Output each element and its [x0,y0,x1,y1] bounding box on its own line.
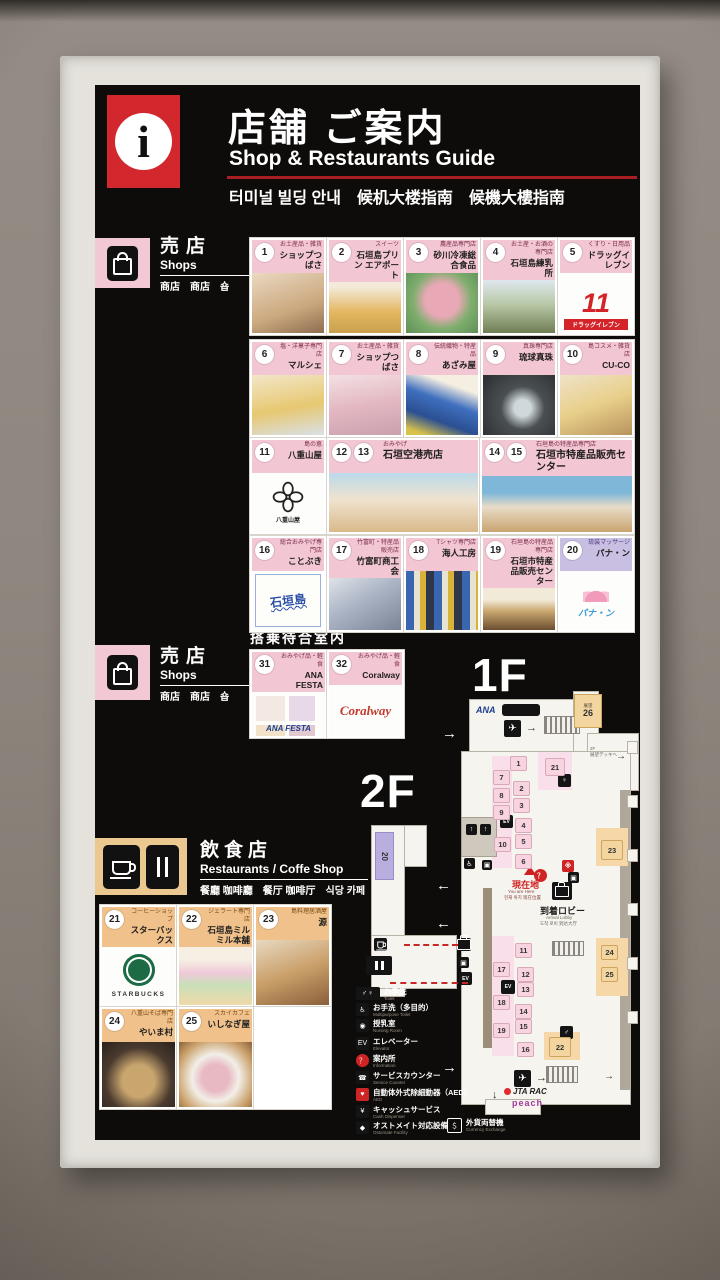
card-category: 琉装マッサージ [585,540,630,548]
card-header-text: お土産・お酒の専門店石垣島練乳所 [508,242,553,278]
legend-sub: Toilet [384,996,407,1001]
arrow-icon: → [616,752,626,762]
shops-section-chip-2 [95,645,150,700]
page-title-multilang: 터미널 빌딩 안내 候机大楼指南 候機大樓指南 [229,184,565,208]
restaurants-label-ja: 飲食店 [200,840,368,862]
card-logo: ANA FESTA [252,692,325,736]
card-header: 8伝統織物・特産品あざみ屋 [406,342,478,375]
legend-text: サービスカウンターService Counter [373,1071,441,1085]
card-number: 14 [485,443,504,462]
restaurants-label-multi: 餐廳 咖啡廳 餐厅 咖啡厅 식당 카페 [200,882,368,897]
card-logo: Coralway [329,685,402,736]
card-header-text: おみやげ石垣空港売店 [379,442,476,462]
card-header-text: 石垣島の特産品専門店石垣市特産品販売センター [532,442,630,474]
map-chip-11: 11 [515,943,532,958]
elevator-icon: EV [501,980,515,994]
legend-sub: Multipurpose Toilet [373,1012,433,1017]
information-icon-box: i [107,95,180,188]
card-category: 石垣島の特産品専門店 [536,442,630,450]
card-shop-name: 八重山屋 [277,450,322,460]
card-logo: 八重山屋 [252,473,324,532]
card-number: 3 [409,243,428,262]
card-number: 20 [563,541,582,560]
shop-card: 1お土産品・雑貨ショップつばさ [250,238,326,335]
legend-item: ♿お手洗（多目的）Multipurpose Toilet [356,1003,433,1017]
card-category: おみやげ品・軽食 [354,654,400,670]
card-shop-name: マルシェ [277,360,322,370]
legend-label: エレベーター [373,1037,418,1046]
card-number: 25 [182,1012,201,1031]
legend-label: 外貨両替機 [466,1118,506,1127]
arrow-icon: → [526,723,537,734]
legend-sub: Information [373,1063,396,1068]
card-header-text: 琉装マッサージパナ・ン [585,540,630,558]
shop-card: 1415石垣島の特産品専門店石垣市特産品販売センター [480,438,634,534]
card-header: 24八重山そば専門店やいま村 [102,1009,175,1042]
title-divider [227,176,637,179]
card-header: 10島コスメ・雑貨店CU-CO [560,342,632,375]
card-photo: 11ドラッグイレブン [560,273,632,333]
card-shop-name: パナ・ン [585,548,630,558]
card-category: お土産品・雑貨 [277,242,322,250]
flower-logo-icon [272,481,304,513]
card-shop-name: 砂川冷凍総合食品 [431,250,476,270]
card-header: 1415石垣島の特産品専門店石垣市特産品販売センター [482,440,632,476]
map-chip-8: 8 [493,788,510,803]
card-photo [329,282,401,333]
card-header-text: ジェラート専門店石垣島ミルミル本舗 [204,909,250,945]
nursing-room-icon: ◉ [356,1019,369,1032]
card-photo [482,476,632,532]
card-shop-name: Coralway [354,670,400,680]
baggage-claim-icon [552,882,572,900]
card-header-text: 八重山そば専門店やいま村 [127,1011,173,1037]
card-shop-name: いしなぎ屋 [204,1019,250,1029]
currency-exchange-icon: ＄ [447,1118,462,1133]
card-photo [329,473,478,532]
card-number: 12 [332,443,351,462]
card-header-text: おみやげ品・軽食ANA FESTA [277,654,323,690]
map-chip-22: 22 [549,1037,571,1057]
legend-item: ◉授乳室Nursing Room [356,1019,402,1033]
card-photo [179,1042,252,1107]
fork-knife-icon [146,845,179,889]
legend-label: 案内所 [373,1054,396,1063]
restaurants-label-en: Restaurants / Coffe Shop [200,862,368,876]
card-photo: パナ・ン [560,571,632,630]
peach-logo: peach [512,1098,543,1108]
card-photo [560,375,632,435]
shop-card: 7お土産品・雑貨ショップつばさ [327,340,403,437]
card-header: 3農産品専門店砂川冷凍総合食品 [406,240,478,273]
card-photo [252,273,324,333]
stairs-icon [546,1066,578,1083]
map-chip-19: 19 [493,1023,510,1038]
legend-item: ♥自動体外式除細動器（AED）AED [356,1088,471,1102]
you-are-here-en: You are Here [508,889,534,895]
legend-text: オストメイト対応設備Ostomate Facility [373,1121,448,1135]
card-logo: 石垣島 [252,571,324,630]
lounge-shop-icon [456,938,471,951]
card-shop-name: 石垣島ミルミル本舗 [204,925,250,945]
card-photo [252,375,324,435]
card-number: 19 [486,541,505,560]
departures-airplane-icon: ✈ [514,1070,531,1087]
card-photo [406,571,478,630]
restaurant-card: 24八重山そば専門店やいま村 [100,1007,177,1109]
card-photo [179,947,252,1005]
restaurants-section-label: 飲食店 Restaurants / Coffe Shop 餐廳 咖啡廳 餐厅 咖… [200,840,368,897]
toilet-icon: ♂♀ [356,987,380,1000]
you-are-here-multi: 현재 위치 现在位置 [504,895,541,901]
card-header: 23島料理居酒屋源 [256,907,329,940]
card-photo [406,273,478,333]
arrow-icon: ↓ [492,1090,498,1101]
page-title-ja: 店舗 ご案内 [228,97,447,152]
card-number: 4 [486,243,505,262]
card-header: 4お土産・お酒の専門店石垣島練乳所 [483,240,555,280]
shop-card: 19石垣島の特産品専門店石垣市特産品販売センター [481,536,557,632]
accessible-icon: ♿ [464,858,475,869]
aed-icon: ♥ [356,1088,369,1101]
card-header-text: 石垣島の特産品専門店石垣市特産品販売センター [508,540,553,586]
card-number: 21 [105,910,124,929]
shop-card: 1213おみやげ石垣空港売店 [327,438,480,534]
map-chip-4: 4 [515,818,532,833]
stairs-icon [552,941,584,956]
card-header-text: Tシャツ専門店海人工房 [431,540,476,558]
map-chip-24: 24 [601,945,618,960]
map-chip-13: 13 [517,982,534,997]
shop-card: 6塩・洋菓子専門店マルシェ [250,340,326,437]
card-number: 9 [486,345,505,364]
card-header-text: 島コスメ・雑貨店CU-CO [585,344,630,370]
card-photo [329,578,401,630]
facility-icon: ▣ [482,860,492,870]
arrow-icon: → [536,1073,547,1084]
card-photo: ANA FESTA [252,692,325,736]
legend-item: ¥キャッシュサービスCash Dispenser [356,1105,441,1119]
card-category: 島料理居酒屋 [281,909,327,917]
shop-card: 2スイーツ石垣島プリン エアポート [327,238,403,335]
map-chip-2: 2 [513,781,530,796]
legend-item: ？案内所Information [356,1054,396,1068]
card-number: 17 [332,541,351,560]
card-shop-name: 竹富町商工会 [354,556,399,576]
legend-sub: AED [373,1097,471,1102]
card-category: 総合おみやげ専門店 [277,540,322,556]
card-header-text: 塩・洋菓子専門店マルシェ [277,344,322,370]
elevator-icon: ↑ [466,824,477,835]
map-chip-7: 7 [493,770,510,785]
card-header: 25スカイカフェいしなぎ屋 [179,1009,252,1042]
legend-label: キャッシュサービス [373,1105,441,1114]
arrow-icon: ← [436,916,451,931]
legend-sub: Cash Dispenser [373,1114,441,1119]
card-number: 32 [332,655,351,674]
legend-label: サービスカウンター [373,1071,441,1080]
info-glyph: i [137,119,150,165]
card-number: 18 [409,541,428,560]
shop-card: 18Tシャツ専門店海人工房 [404,536,480,632]
card-category: 農産品専門店 [431,242,476,250]
elevator-icon: ↑ [480,824,491,835]
card-header: 9真珠専門店琉球真珠 [483,342,555,375]
map-chip-1: 1 [510,756,527,771]
shop-card: 10島コスメ・雑貨店CU-CO [558,340,634,437]
restaurants-section-chip [95,838,187,895]
shop-card: 20琉装マッサージパナ・ンパナ・ン [558,536,634,632]
map-chip-21: 21 [545,758,565,776]
lounge-shop-icon: ▣ [458,957,469,968]
shop-card: 3農産品専門店砂川冷凍総合食品 [404,238,480,335]
map-chip-18: 18 [493,995,510,1010]
card-shop-name: ショップつばさ [354,352,399,372]
card-number: 7 [332,345,351,364]
card-shop-name: ANA FESTA [277,670,323,690]
logo-text: 八重山屋 [276,515,300,524]
coffee-shop-icon [374,938,387,951]
map-chip-5: 5 [515,834,532,849]
card-category: 八重山そば専門店 [127,1011,173,1027]
map-chip-14: 14 [515,1004,532,1019]
shop-card: 9真珠専門店琉球真珠 [481,340,557,437]
map-chip-6: 6 [515,854,532,869]
card-header: 16総合おみやげ専門店ことぶき [252,538,324,571]
arrival-lobby-multi: 도착 로비 到达大厅 [540,921,577,927]
card-header: 5くすり・日用品ドラッグイレブン [560,240,632,273]
card-header: 18Tシャツ専門店海人工房 [406,538,478,571]
link-line [404,944,458,946]
card-header-text: くすり・日用品ドラッグイレブン [585,242,630,270]
card-header: 19石垣島の特産品専門店石垣市特産品販売センター [483,538,555,588]
card-number: 1 [255,243,274,262]
card-photo [329,375,401,435]
card-shop-name: 海人工房 [431,548,476,558]
card-photo [483,588,555,630]
card-number: 31 [255,655,274,674]
card-shop-name: ドラッグイレブン [585,250,630,270]
card-shop-name: 石垣空港売店 [383,450,476,462]
card-category: 竹富町・特産品販売店 [354,540,399,556]
card-photo [483,375,555,435]
shopping-bag-icon [107,655,138,690]
legend-item: ◆オストメイト対応設備Ostomate Facility [356,1121,448,1135]
legend-item: ♂♀お手洗Toilet [356,987,407,1001]
map-chip-26: 展望26 [574,694,602,728]
card-photo: 八重山屋 [252,473,324,532]
restaurant-card: 22ジェラート専門店石垣島ミルミル本舗 [177,905,254,1007]
map-chip-12: 12 [517,967,534,982]
card-header: 20琉装マッサージパナ・ン [560,538,632,571]
shop-card: 11島の恵八重山屋八重山屋 [250,438,326,534]
shopping-bag-icon [107,246,138,281]
card-category: ジェラート専門店 [204,909,250,925]
card-number: 11 [255,443,274,462]
card-category: おみやげ品・軽食 [277,654,323,670]
map-chip-10: 10 [494,837,511,852]
shop-card: 17竹富町・特産品販売店竹富町商工会 [327,536,403,632]
card-category: お土産品・雑貨 [354,344,399,352]
card-logo: STARBUCKS [102,947,175,1005]
shop-card: 8伝統織物・特産品あざみ屋 [404,340,480,437]
baggage-belt [483,888,492,1048]
service-counter-icon: ☎ [356,1071,369,1084]
card-header: 32おみやげ品・軽食Coralway [329,652,402,685]
legend-label: お手洗（多目的） [373,1003,433,1012]
coffee-cup-icon [103,845,140,889]
card-shop-name: CU-CO [585,360,630,370]
cash-service-icon: ¥ [356,1105,369,1118]
information-icon: ？ [356,1054,369,1067]
legend-label: 授乳室 [373,1019,402,1028]
legend-sub: Service Counter [373,1080,441,1085]
card-number: 13 [354,443,373,462]
arrow-icon: → [604,1072,614,1082]
card-number: 23 [259,910,278,929]
card-category: お土産・お酒の専門店 [508,242,553,258]
aed-icon: ※ [562,860,574,872]
card-header: 31おみやげ品・軽食ANA FESTA [252,652,325,692]
departures-airplane-icon: ✈ [504,720,521,737]
card-header-text: 島料理居酒屋源 [281,909,327,927]
card-header: 2スイーツ石垣島プリン エアポート [329,240,401,282]
card-header-text: お土産品・雑貨ショップつばさ [354,344,399,372]
card-shop-name: ショップつばさ [277,250,322,270]
shop-card: 16総合おみやげ専門店ことぶき石垣島 [250,536,326,632]
card-header: 22ジェラート専門店石垣島ミルミル本舗 [179,907,252,947]
ana-logo: ANA [476,705,496,715]
legend-text: エレベーターElevator [373,1037,418,1051]
card-number: 22 [182,910,201,929]
card-number: 16 [255,541,274,560]
card-category: 伝統織物・特産品 [431,344,476,360]
card-header-text: スカイカフェいしなぎ屋 [204,1011,250,1029]
card-category: 島コスメ・雑貨店 [585,344,630,360]
arrow-icon: → [442,726,457,741]
card-header: 17竹富町・特産品販売店竹富町商工会 [329,538,401,578]
arrow-icon: → [442,1060,457,1075]
card-category: おみやげ [383,442,476,450]
shop-card: 4お土産・お酒の専門店石垣島練乳所 [481,238,557,335]
map-chip-3: 3 [513,798,530,813]
map-chip-23: 23 [601,840,623,860]
ostomate-icon: ◆ [356,1121,369,1134]
floor-2f-label: 2F [360,764,416,818]
card-shop-name: 石垣市特産品販売センター [536,450,630,474]
deck-note: 2F展望デッキへ [590,746,617,757]
card-header-text: 伝統織物・特産品あざみ屋 [431,344,476,370]
legend-text: お手洗Toilet [384,987,407,1001]
legend-label: 自動体外式除細動器（AED） [373,1088,471,1097]
card-shop-name: 琉球真珠 [508,352,553,362]
lounge-card: 31おみやげ品・軽食ANA FESTAANA FESTA [250,650,327,738]
legend-label: お手洗 [384,987,407,996]
card-photo: STARBUCKS [102,947,175,1005]
card-photo [102,1042,175,1107]
legend-item: ☎サービスカウンターService Counter [356,1071,441,1085]
card-category: コーヒーショップ [127,909,173,925]
card-shop-name: あざみ屋 [431,360,476,370]
legend-text: 授乳室Nursing Room [373,1019,402,1033]
card-header-text: 島の恵八重山屋 [277,442,322,460]
card-header-text: スイーツ石垣島プリン エアポート [354,242,399,280]
map-chip-25: 25 [601,967,618,982]
legend-sub: Elevator [373,1046,418,1051]
card-photo: 石垣島 [252,571,324,630]
card-header: 6塩・洋菓子専門店マルシェ [252,342,324,375]
legend-text: お手洗（多目的）Multipurpose Toilet [373,1003,433,1017]
card-category: くすり・日用品 [585,242,630,250]
card-number: 2 [332,243,351,262]
legend-label: オストメイト対応設備 [373,1121,448,1130]
card-photo [483,280,555,333]
card-header: 11島の恵八重山屋 [252,440,324,473]
card-header-text: 真珠専門店琉球真珠 [508,344,553,362]
page-title-en: Shop & Restaurants Guide [229,147,495,171]
shop-card: 5くすり・日用品ドラッグイレブン11ドラッグイレブン [558,238,634,335]
legend-item: EVエレベーターElevator [356,1037,418,1051]
logo-band: ドラッグイレブン [564,319,628,330]
card-number: 15 [507,443,526,462]
card-shop-name: 石垣島プリン エアポート [354,250,399,281]
accessible-toilet-icon: ♿ [356,1003,369,1016]
map-chip-16: 16 [517,1042,534,1057]
floor-1f-label: 1F [472,648,528,702]
arrow-icon: ← [436,878,451,893]
card-header-text: 竹富町・特産品販売店竹富町商工会 [354,540,399,576]
map-chip-15: 15 [515,1019,532,1034]
information-icon: i [115,113,172,170]
lounge-card: 32おみやげ品・軽食CoralwayCoralway [327,650,404,738]
card-shop-name: スターバックス [127,925,173,945]
restaurant-card: 21コーヒーショップスターバックスSTARBUCKS [100,905,177,1007]
card-number: 8 [409,345,428,364]
link-line [390,982,468,984]
card-header: 1お土産品・雑貨ショップつばさ [252,240,324,273]
jta-rac-logo: JTA RAC [504,1087,547,1096]
map-chip-20: 20 [375,832,394,880]
card-shop-name: やいま村 [127,1027,173,1037]
card-number: 10 [563,345,582,364]
legend-text: 案内所Information [373,1054,396,1068]
card-header-text: コーヒーショップスターバックス [127,909,173,945]
legend-sub: Nursing Room [373,1028,402,1033]
card-category: 石垣島の特産品専門店 [508,540,553,556]
card-header: 7お土産品・雑貨ショップつばさ [329,342,401,375]
card-photo: Coralway [329,685,402,736]
restaurant-card [254,1007,331,1109]
card-photo [406,375,478,435]
legend-sub: Ostomate Facility [373,1130,448,1135]
restaurant-icons [366,956,392,975]
card-header-text: 農産品専門店砂川冷凍総合食品 [431,242,476,270]
card-category: 塩・洋菓子専門店 [277,344,322,360]
card-header-text: おみやげ品・軽食Coralway [354,654,400,680]
card-category: スカイカフェ [204,1011,250,1019]
card-header: 1213おみやげ石垣空港売店 [329,440,478,473]
restaurant-card: 25スカイカフェいしなぎ屋 [177,1007,254,1109]
elevator-icon: EV [356,1037,369,1050]
card-photo [256,940,329,1005]
legend-text: 外貨両替機Currency Exchange [466,1118,506,1132]
card-shop-name: ことぶき [277,556,322,566]
card-category: 島の恵 [277,442,322,450]
map-chip-9: 9 [493,805,510,820]
shops-section-chip [95,238,150,288]
card-number: 24 [105,1012,124,1031]
signboard-photo: i 店舗 ご案内 Shop & Restaurants Guide 터미널 빌딩… [0,0,720,1280]
